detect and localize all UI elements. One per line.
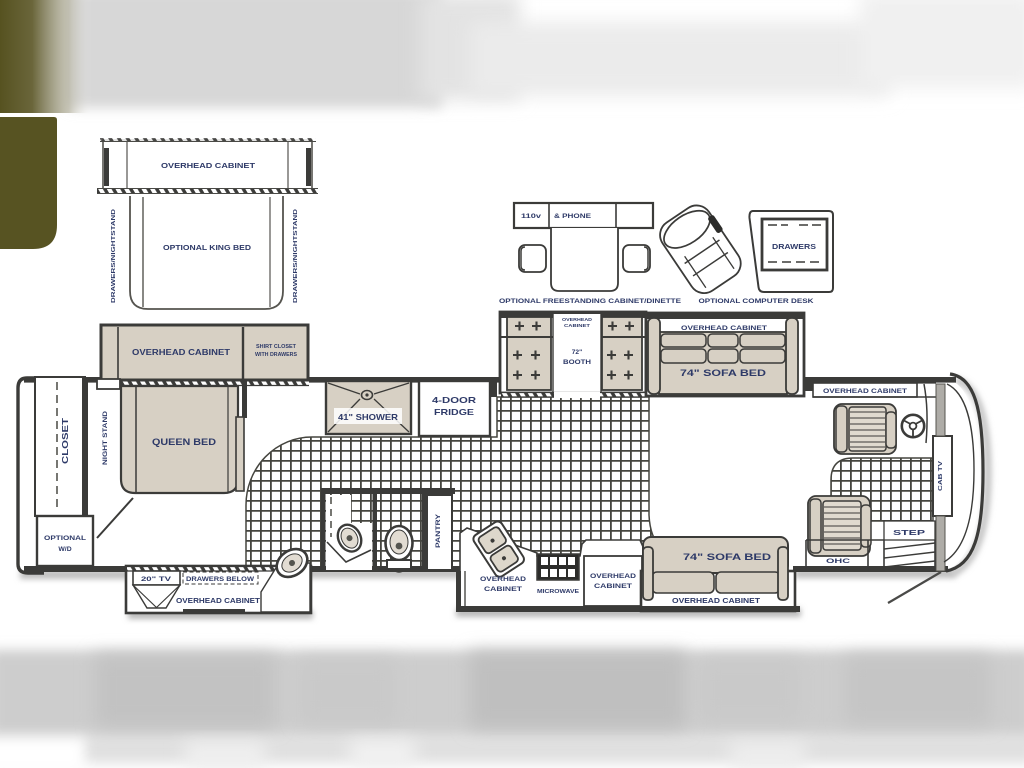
svg-text:OPTIONAL KING BED: OPTIONAL KING BED [163, 243, 251, 252]
svg-text:OVERHEAD: OVERHEAD [562, 317, 592, 322]
svg-text:CAB TV: CAB TV [938, 461, 944, 491]
svg-text:FRIDGE: FRIDGE [434, 407, 475, 417]
svg-text:DRAWERS/NIGHTSTAND: DRAWERS/NIGHTSTAND [111, 209, 117, 303]
svg-text:NIGHT STAND: NIGHT STAND [102, 411, 109, 465]
svg-text:DRAWERS/NIGHTSTAND: DRAWERS/NIGHTSTAND [293, 209, 299, 303]
svg-text:OHC: OHC [826, 558, 851, 565]
svg-text:PANTRY: PANTRY [435, 513, 442, 548]
svg-text:& PHONE: & PHONE [554, 214, 591, 220]
svg-text:OVERHEAD CABINET: OVERHEAD CABINET [681, 325, 768, 332]
svg-text:OVERHEAD CABINET: OVERHEAD CABINET [161, 161, 256, 170]
svg-text:OVERHEAD: OVERHEAD [590, 573, 637, 580]
svg-text:WITH DRAWERS: WITH DRAWERS [255, 352, 298, 358]
svg-text:CABINET: CABINET [564, 323, 591, 328]
svg-text:DRAWERS: DRAWERS [772, 244, 816, 251]
svg-text:OVERHEAD CABINET: OVERHEAD CABINET [823, 388, 907, 395]
svg-text:OPTIONAL COMPUTER DESK: OPTIONAL COMPUTER DESK [699, 298, 814, 305]
svg-text:41" SHOWER: 41" SHOWER [338, 412, 398, 422]
svg-text:OPTIONAL: OPTIONAL [44, 535, 86, 542]
svg-text:OPTIONAL FREESTANDING CABINET/: OPTIONAL FREESTANDING CABINET/DINETTE [499, 298, 682, 305]
svg-text:OVERHEAD CABINET: OVERHEAD CABINET [672, 598, 761, 605]
svg-text:STEP: STEP [893, 528, 925, 537]
svg-text:CABINET: CABINET [594, 583, 632, 590]
svg-text:MICROWAVE: MICROWAVE [537, 589, 579, 595]
svg-text:74" SOFA BED: 74" SOFA BED [680, 368, 766, 378]
svg-text:W/D: W/D [58, 546, 71, 553]
svg-text:QUEEN BED: QUEEN BED [152, 437, 217, 447]
svg-text:4-DOOR: 4-DOOR [432, 395, 476, 405]
svg-text:OVERHEAD CABINET: OVERHEAD CABINET [132, 348, 230, 357]
svg-text:DRAWERS BELOW: DRAWERS BELOW [186, 576, 255, 583]
svg-text:110v: 110v [521, 214, 542, 220]
svg-text:74" SOFA BED: 74" SOFA BED [683, 552, 771, 562]
svg-text:72": 72" [572, 349, 582, 356]
svg-text:20" TV: 20" TV [141, 576, 172, 583]
svg-text:CABINET: CABINET [484, 586, 522, 593]
svg-text:BOOTH: BOOTH [563, 359, 591, 366]
svg-text:CLOSET: CLOSET [61, 418, 70, 464]
svg-text:SHIRT CLOSET: SHIRT CLOSET [256, 344, 296, 350]
svg-text:OVERHEAD CABINET: OVERHEAD CABINET [176, 598, 261, 605]
svg-text:OVERHEAD: OVERHEAD [480, 576, 527, 583]
